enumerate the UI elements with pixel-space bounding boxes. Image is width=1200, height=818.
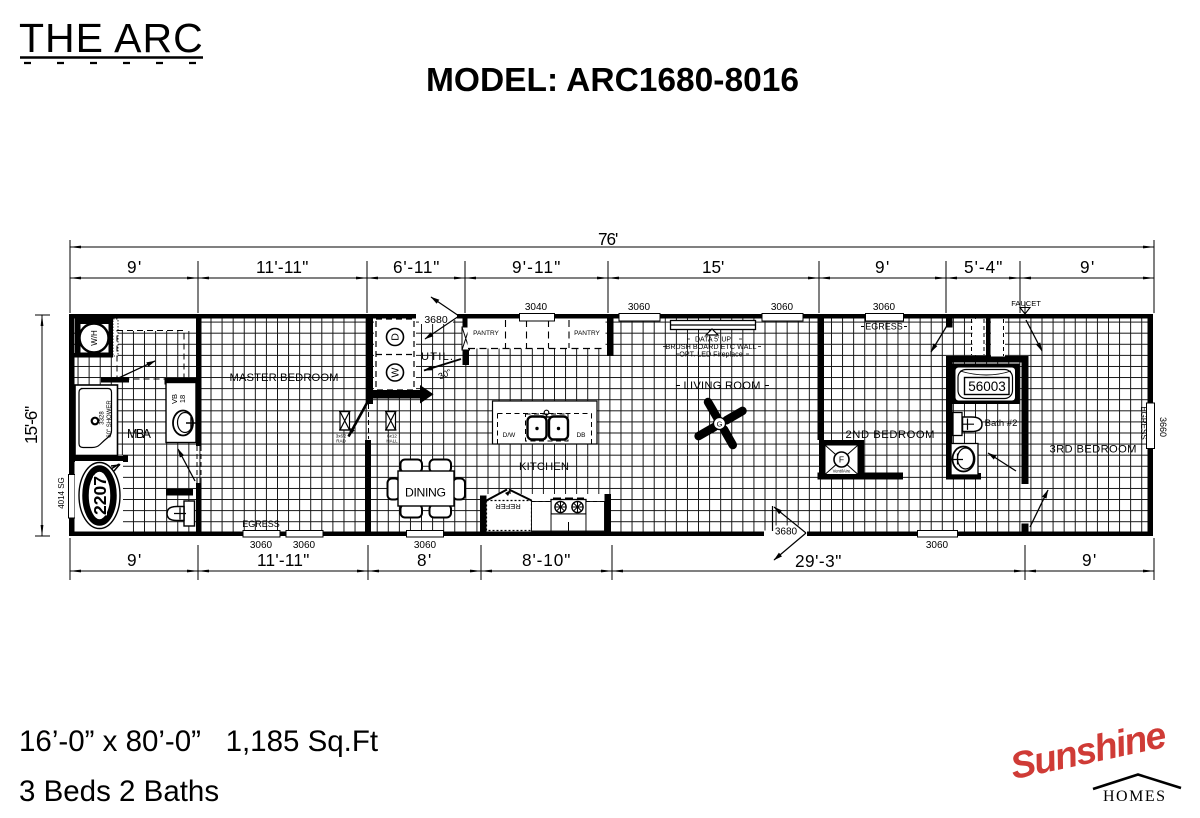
svg-text:16’-0” x 80’-0” 1,185 Sq.Ft: 16’-0” x 80’-0” 1,185 Sq.Ft: [19, 725, 378, 758]
svg-text:9': 9': [875, 257, 889, 277]
svg-text:EGRESS: EGRESS: [865, 322, 903, 332]
svg-text:2207: 2207: [90, 476, 110, 515]
svg-text:3060: 3060: [873, 302, 896, 313]
svg-text:DINING: DINING: [405, 486, 446, 500]
svg-text:3 Beds 2 Baths: 3 Beds 2 Baths: [19, 775, 219, 808]
svg-text:4014 SG: 4014 SG: [57, 477, 66, 509]
svg-text:76': 76': [598, 229, 618, 249]
svg-text:MASTER BEDROOM: MASTER BEDROOM: [230, 372, 339, 384]
svg-text:2ND BEDROOM: 2ND BEDROOM: [846, 429, 935, 441]
svg-text:60" SHOWER: 60" SHOWER: [107, 400, 113, 438]
svg-text:W/H: W/H: [90, 330, 99, 346]
svg-text:EGRESS: EGRESS: [242, 519, 280, 529]
svg-text:HALL: HALL: [386, 439, 398, 444]
svg-text:D/W: D/W: [503, 432, 517, 439]
svg-text:KITCHEN: KITCHEN: [519, 461, 569, 473]
svg-text:3060: 3060: [414, 540, 437, 551]
svg-text:9'-11": 9'-11": [512, 257, 560, 277]
svg-text:FAUCET: FAUCET: [1011, 299, 1041, 308]
svg-text:3680: 3680: [775, 527, 798, 538]
svg-text:18: 18: [178, 395, 187, 403]
svg-text:11'-11": 11'-11": [257, 550, 309, 570]
svg-text:3060: 3060: [771, 302, 794, 313]
svg-text:3RD BEDROOM: 3RD BEDROOM: [1050, 444, 1137, 456]
svg-text:3060: 3060: [628, 302, 651, 313]
svg-text:3680: 3680: [424, 314, 448, 326]
svg-text:8': 8': [417, 550, 431, 570]
svg-text:9': 9': [1080, 257, 1094, 277]
svg-text:REFER: REFER: [495, 502, 521, 511]
svg-text:11'-11": 11'-11": [256, 257, 308, 277]
svg-text:9': 9': [1082, 550, 1096, 570]
svg-text:8'-10": 8'-10": [522, 550, 570, 570]
svg-text:3660: 3660: [1158, 417, 1168, 437]
svg-text:29'-3": 29'-3": [795, 551, 841, 571]
svg-text:EGRESS: EGRESS: [1139, 406, 1148, 439]
svg-text:MODEL: ARC1680-8016: MODEL: ARC1680-8016: [426, 62, 799, 99]
svg-text:9': 9': [127, 257, 141, 277]
svg-text:5'-4": 5'-4": [964, 257, 1002, 277]
svg-text:D: D: [390, 333, 402, 341]
svg-text:W: W: [390, 367, 402, 377]
svg-text:PANTRY: PANTRY: [473, 330, 499, 337]
svg-text:HOMES: HOMES: [1103, 788, 1167, 805]
svg-text:VentilAire: VentilAire: [833, 469, 851, 474]
svg-text:MBA: MBA: [127, 427, 152, 441]
svg-text:THE ARC: THE ARC: [19, 15, 204, 61]
svg-text:OPT. LED Fireplace: OPT. LED Fireplace: [679, 350, 743, 359]
svg-text:F: F: [839, 455, 844, 465]
svg-text:DB: DB: [576, 432, 585, 439]
svg-text:15': 15': [702, 257, 724, 277]
svg-text:15'-6": 15'-6": [21, 406, 41, 444]
svg-text:LIVING ROOM: LIVING ROOM: [684, 380, 761, 392]
svg-text:UTIL.: UTIL.: [421, 351, 453, 363]
svg-text:3060: 3060: [293, 540, 316, 551]
svg-text:3060: 3060: [250, 540, 273, 551]
svg-text:RAD: RAD: [336, 439, 346, 444]
svg-text:Bath #2: Bath #2: [985, 418, 1018, 429]
svg-text:6'-11": 6'-11": [393, 257, 439, 277]
svg-text:56003: 56003: [968, 379, 1006, 394]
svg-text:G: G: [717, 420, 723, 429]
svg-text:3328: 3328: [100, 411, 106, 425]
svg-text:3040: 3040: [525, 302, 548, 313]
svg-text:PANTRY: PANTRY: [574, 330, 600, 337]
svg-text:9': 9': [127, 550, 141, 570]
svg-text:3060: 3060: [926, 540, 949, 551]
